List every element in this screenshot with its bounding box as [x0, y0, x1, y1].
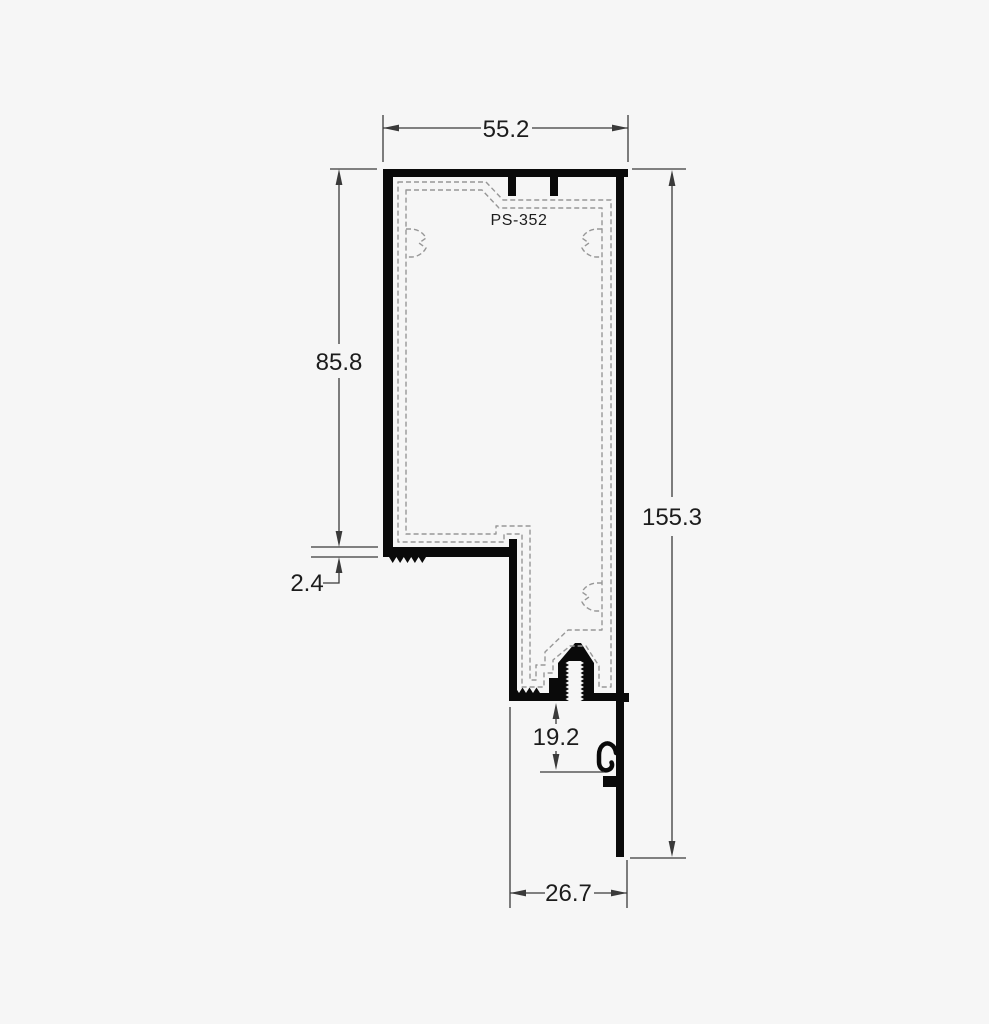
outer-dashed-contour: [398, 182, 611, 687]
dim-step-thickness: 2.4: [290, 557, 342, 597]
arrowhead-right: [611, 890, 627, 897]
profile-technical-drawing: 55.2 85.8 2.4 155.3: [0, 0, 989, 1024]
inner-dashed-contour: [406, 190, 602, 680]
arrowhead-top: [336, 169, 343, 185]
inner-contours: [398, 182, 611, 687]
screw-boss-tab: [549, 643, 594, 701]
dim-total-height: 155.3: [630, 169, 702, 858]
dim-boss-depth: 19.2: [533, 703, 604, 772]
dimension-text: 19.2: [533, 724, 580, 751]
screw-port-upper-right: [582, 229, 602, 257]
dimension-text: 55.2: [483, 116, 530, 143]
arrowhead-left: [383, 125, 399, 132]
profile-label: PS-352: [491, 212, 548, 229]
dimension-text: 2.4: [290, 570, 323, 597]
arrowhead-right: [612, 125, 628, 132]
arrowhead-up: [553, 703, 560, 719]
arrowhead-top: [669, 170, 676, 186]
dim-upper-height: 85.8: [311, 169, 378, 557]
profile-outline: [383, 169, 629, 857]
retainer-hook: [599, 743, 616, 770]
arrowhead-down: [553, 754, 560, 770]
step-serration: [389, 557, 426, 563]
dim-top-width: 55.2: [383, 115, 628, 162]
arrowhead-bottom: [336, 531, 343, 547]
leader-line: [323, 573, 339, 583]
arrowhead-up: [336, 557, 343, 573]
screw-port-lower-right: [582, 583, 602, 611]
dimension-text: 26.7: [545, 880, 592, 907]
dimension-text: 155.3: [642, 504, 702, 531]
profile-walls: [383, 169, 629, 857]
dimension-text: 85.8: [316, 349, 363, 376]
arrowhead-left: [510, 890, 526, 897]
screw-port-upper-left: [406, 229, 426, 257]
drawing-canvas: 55.2 85.8 2.4 155.3: [0, 0, 989, 1024]
arrowhead-bottom: [669, 841, 676, 857]
